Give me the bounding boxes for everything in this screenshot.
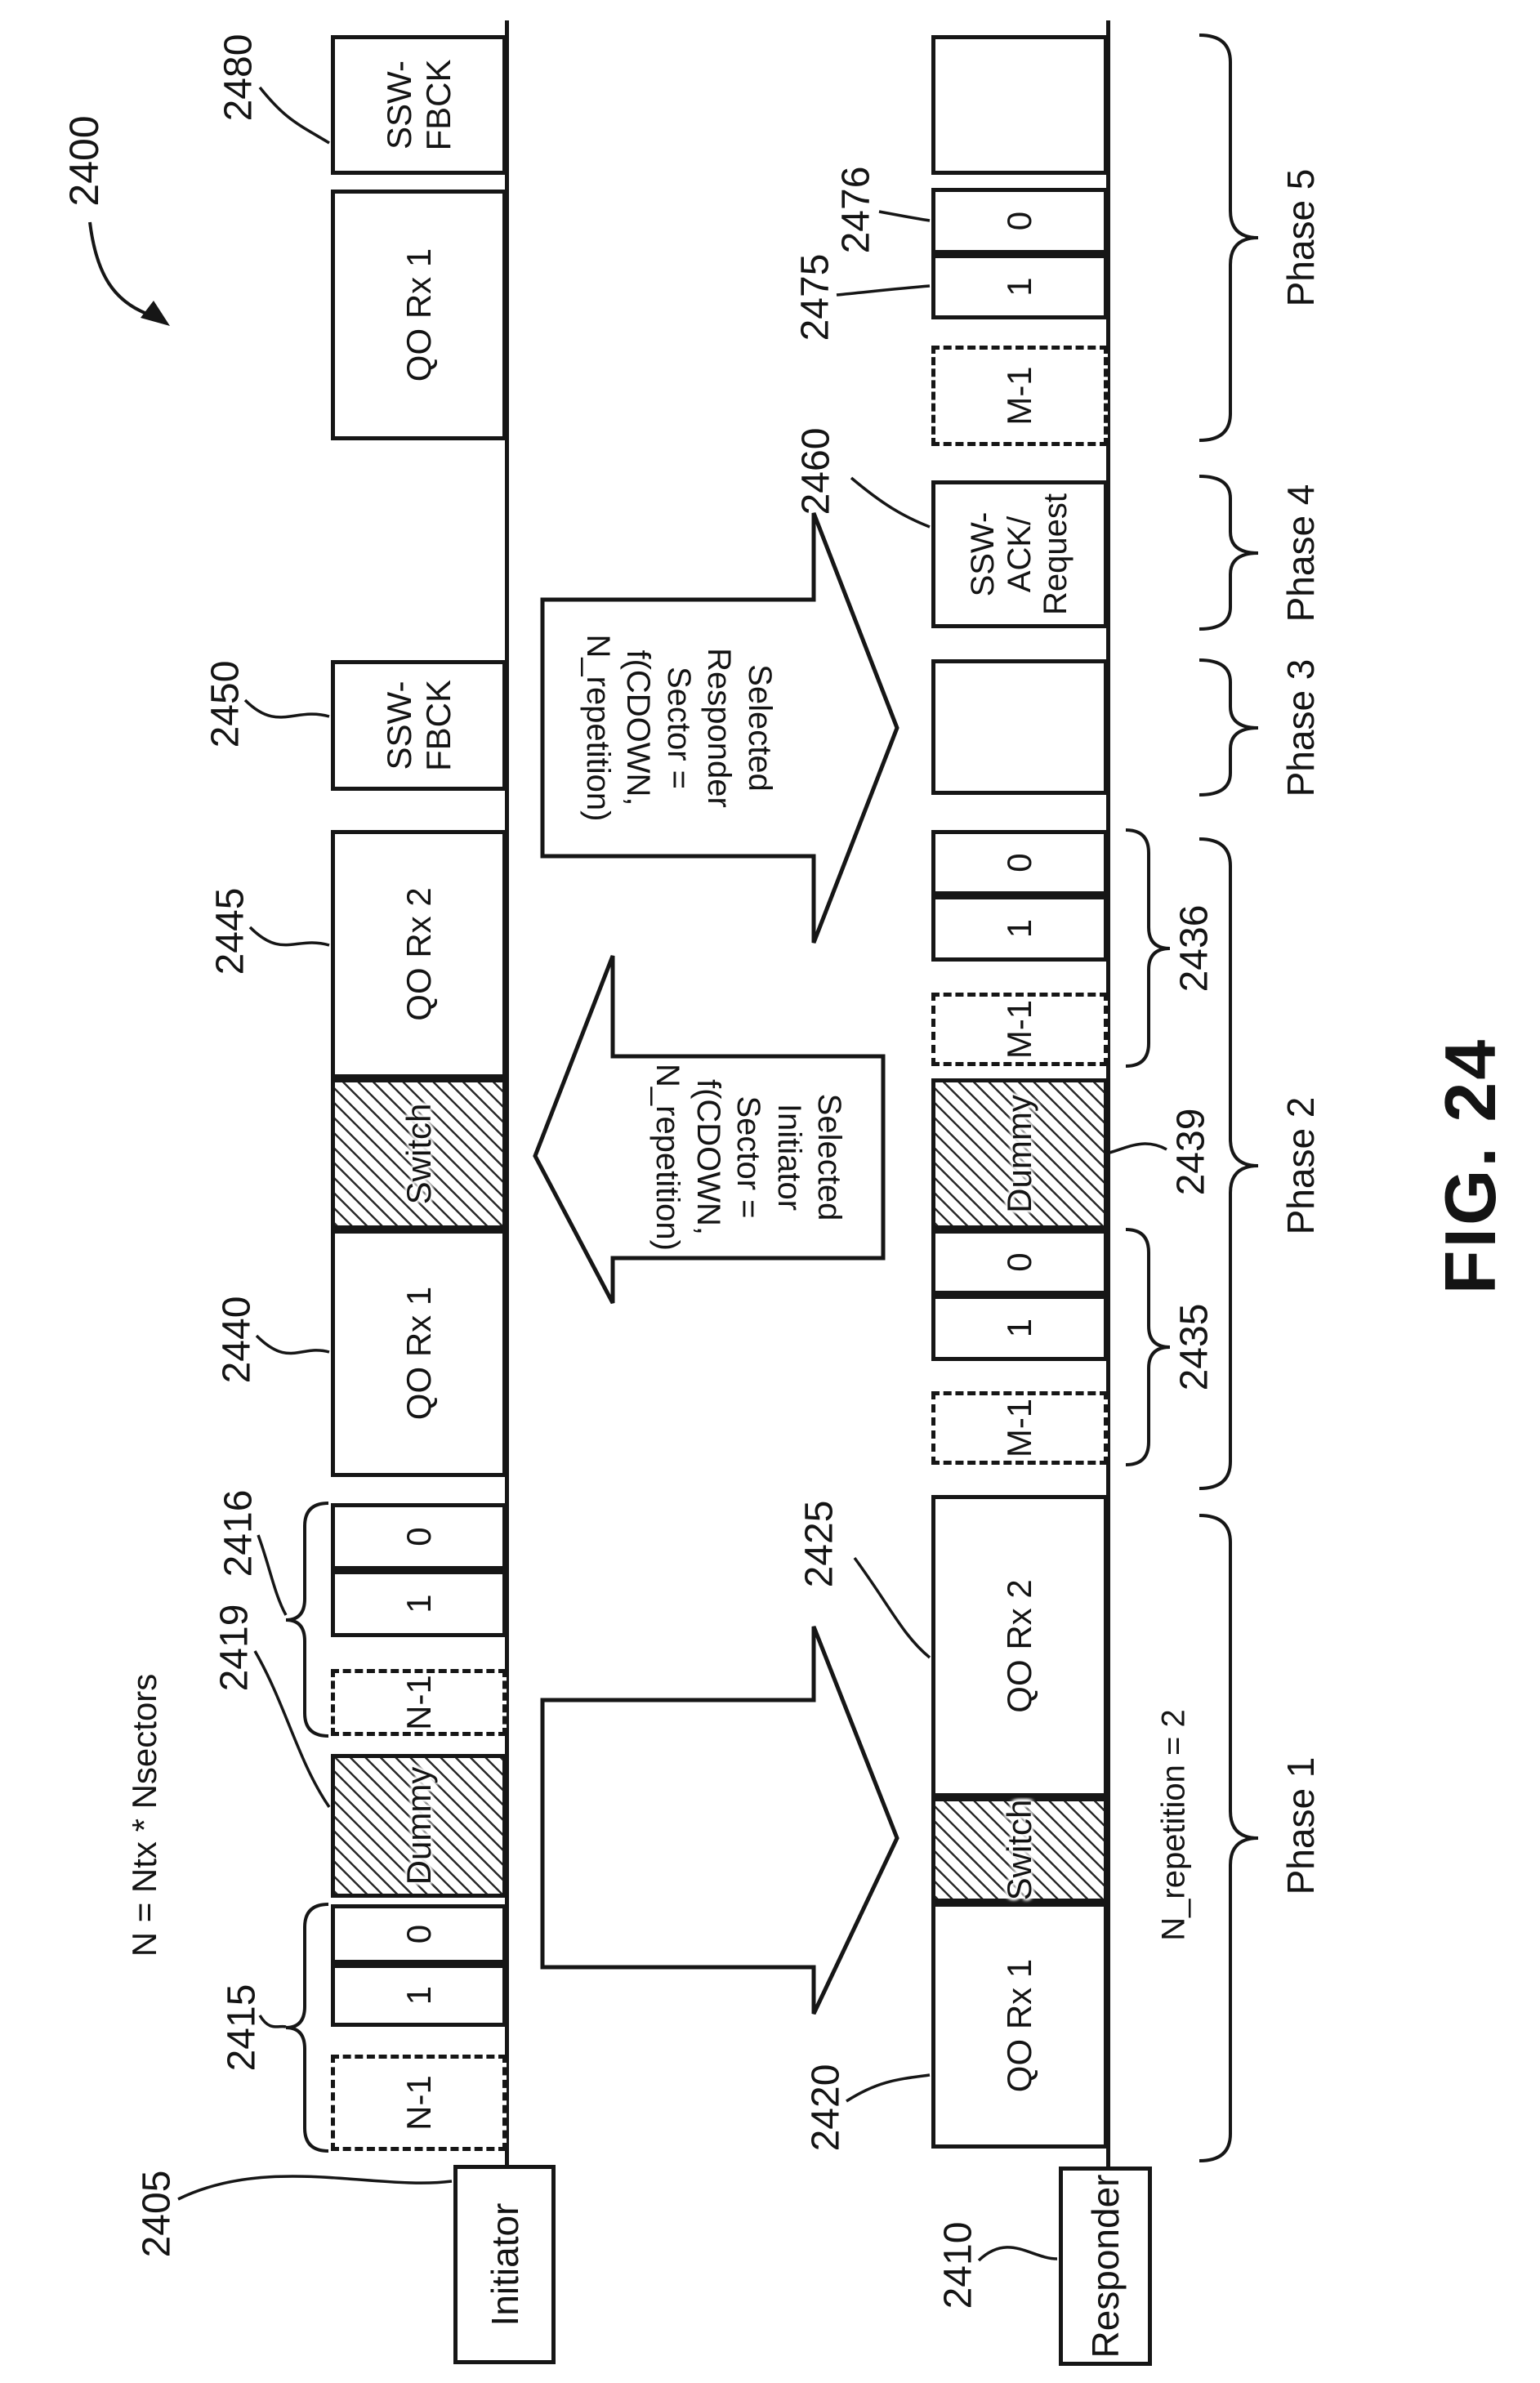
- resp-block-0-b: 0: [931, 830, 1108, 895]
- initiator-box: Initiator: [453, 2165, 556, 2364]
- block-label: QO Rx 1: [1000, 1959, 1038, 2092]
- resp-block-0-a: 0: [931, 1229, 1108, 1295]
- phase-5-label: Phase 5: [1279, 169, 1323, 307]
- resp-block-ssw-ack-request: SSW- ACK/ Request: [931, 480, 1108, 628]
- block-label: Dummy: [400, 1767, 438, 1885]
- ref-2445: 2445: [208, 888, 253, 975]
- brace-phase-3: [1199, 660, 1258, 795]
- leader-2420: [846, 2075, 930, 2101]
- resp-block-qo-rx-2: QO Rx 2: [931, 1495, 1108, 1797]
- block-label: 1: [1000, 1319, 1038, 1337]
- block-label: 0: [400, 1527, 438, 1546]
- resp-block-0-c: 0: [931, 188, 1108, 254]
- ref-2436: 2436: [1172, 905, 1217, 993]
- resp-block-switch: Switch: [931, 1797, 1108, 1903]
- leader-2475: [837, 286, 930, 295]
- ref-2405: 2405: [135, 2171, 180, 2258]
- block-label: M-1: [1000, 366, 1038, 425]
- ref-2435: 2435: [1172, 1304, 1217, 1391]
- ref-2450: 2450: [203, 661, 248, 748]
- ref-2415: 2415: [220, 1984, 265, 2072]
- patent-figure-page: Initiator Responder N-1 1 0 Dummy N-1 1 …: [0, 0, 1540, 2383]
- ref-2480: 2480: [216, 34, 261, 122]
- leader-2400-arrow: [90, 222, 149, 315]
- arrow-text-selected-initiator-sector: Selected Initiator Sector = f(CDOWN, N_r…: [613, 1056, 883, 1258]
- block-label: Switch: [1000, 1800, 1038, 1901]
- ref-2420: 2420: [804, 2064, 849, 2152]
- leader-2440: [257, 1336, 329, 1354]
- resp-block-idle-phase3: [931, 659, 1108, 795]
- resp-block-mminus1-a: M-1: [931, 1391, 1108, 1465]
- init-block-1-rep2: 1: [331, 1570, 507, 1637]
- block-label: 0: [1000, 1252, 1038, 1271]
- block-label: QO Rx 1: [400, 1287, 438, 1420]
- block-label: QO Rx 2: [400, 887, 438, 1020]
- leader-2419: [255, 1651, 329, 1807]
- initiator-box-label: Initiator: [483, 2203, 527, 2327]
- fig-24-diagram: Initiator Responder N-1 1 0 Dummy N-1 1 …: [0, 0, 1540, 2383]
- brace-2416: [286, 1503, 328, 1736]
- ref-2400: 2400: [60, 115, 108, 206]
- ref-2419: 2419: [212, 1604, 257, 1692]
- block-label: 0: [1000, 212, 1038, 230]
- leader-2425: [855, 1558, 930, 1658]
- brace-phase-4: [1199, 476, 1258, 629]
- block-label: SSW- ACK/ Request: [965, 493, 1074, 615]
- block-label: Switch: [400, 1104, 438, 1205]
- arrow-phase1-down: [542, 1627, 897, 2014]
- ref-2475: 2475: [793, 254, 838, 341]
- brace-2415: [286, 1904, 328, 2151]
- init-block-qo-rx-2: QO Rx 2: [331, 830, 507, 1078]
- block-label: 1: [400, 1594, 438, 1613]
- init-block-nminus1-rep1: N-1: [331, 2055, 507, 2151]
- phase-1-label: Phase 1: [1279, 1757, 1323, 1895]
- block-label: M-1: [1000, 1000, 1038, 1059]
- init-block-dummy: Dummy: [331, 1754, 507, 1898]
- block-label: N-1: [400, 2075, 438, 2131]
- block-label: QO Rx 2: [1000, 1579, 1038, 1712]
- init-block-qo-rx-1b: QO Rx 1: [331, 190, 507, 440]
- block-label: 1: [400, 1986, 438, 2005]
- ref-2476: 2476: [834, 167, 879, 254]
- brace-2435: [1126, 1229, 1170, 1465]
- arrowhead-2400: [141, 301, 170, 326]
- resp-block-dummy: Dummy: [931, 1078, 1108, 1229]
- brace-2436: [1126, 830, 1170, 1066]
- leader-2410: [979, 2247, 1057, 2260]
- n-repetition-note: N_repetition = 2: [1156, 1709, 1193, 1941]
- resp-block-mminus1-c: M-1: [931, 346, 1108, 446]
- ref-2425: 2425: [797, 1501, 842, 1588]
- leader-2476: [879, 212, 930, 221]
- brace-phase-5: [1199, 35, 1258, 440]
- brace-phase-1: [1199, 1515, 1258, 2161]
- responder-box: Responder: [1059, 2167, 1152, 2366]
- ref-2439: 2439: [1169, 1109, 1214, 1196]
- ref-2460: 2460: [794, 428, 839, 515]
- responder-box-label: Responder: [1083, 2174, 1127, 2358]
- init-block-switch: Switch: [331, 1078, 507, 1229]
- leader-2439: [1109, 1144, 1167, 1153]
- init-block-nminus1-rep2: N-1: [331, 1669, 507, 1736]
- init-block-0-rep2: 0: [331, 1503, 507, 1570]
- init-block-qo-rx-1: QO Rx 1: [331, 1229, 507, 1477]
- leader-2416: [258, 1535, 286, 1615]
- block-label: SSW- FBCK: [380, 680, 457, 771]
- block-label: 1: [1000, 277, 1038, 296]
- leader-2480: [260, 87, 329, 143]
- block-label: SSW- FBCK: [380, 60, 457, 151]
- phase-3-label: Phase 3: [1279, 659, 1323, 797]
- block-label: 0: [400, 1925, 438, 1943]
- init-block-ssw-fbck-1: SSW- FBCK: [331, 660, 507, 791]
- init-block-1-rep1: 1: [331, 1964, 507, 2027]
- figure-number-label: FIG. 24: [1429, 1038, 1512, 1294]
- resp-block-1-b: 1: [931, 895, 1108, 962]
- leader-2445: [250, 927, 329, 945]
- n-formula-note: N = Ntx * Nsectors: [125, 1674, 164, 1957]
- phase-2-label: Phase 2: [1279, 1097, 1323, 1235]
- leader-2450: [245, 700, 329, 717]
- resp-block-1-a: 1: [931, 1295, 1108, 1361]
- ref-2410: 2410: [936, 2222, 981, 2309]
- block-label: 1: [1000, 919, 1038, 938]
- block-label: M-1: [1000, 1399, 1038, 1457]
- leader-2460: [851, 478, 930, 527]
- block-label: N-1: [400, 1675, 438, 1730]
- init-block-ssw-fbck-2: SSW- FBCK: [331, 35, 507, 175]
- block-label: 0: [1000, 853, 1038, 872]
- phase-4-label: Phase 4: [1279, 484, 1323, 623]
- arrow-text-selected-responder-sector: Selected Responder Sector = f(CDOWN, N_r…: [542, 600, 814, 856]
- block-label: Dummy: [1000, 1095, 1038, 1213]
- init-block-0-rep1: 0: [331, 1904, 507, 1964]
- resp-block-1-c: 1: [931, 254, 1108, 319]
- resp-block-mminus1-b: M-1: [931, 993, 1108, 1066]
- block-label: QO Rx 1: [400, 248, 438, 382]
- resp-block-idle-phase5: [931, 35, 1108, 175]
- ref-2440: 2440: [215, 1296, 260, 1384]
- resp-block-qo-rx-1: QO Rx 1: [931, 1903, 1108, 2149]
- ref-2416: 2416: [216, 1490, 261, 1578]
- leader-2405: [178, 2176, 452, 2199]
